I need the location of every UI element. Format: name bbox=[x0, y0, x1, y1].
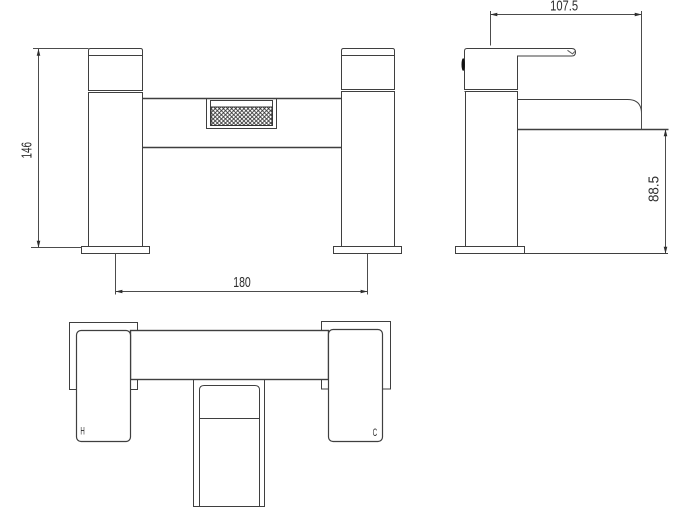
svg-text:146: 146 bbox=[19, 142, 36, 159]
svg-text:C: C bbox=[373, 427, 378, 439]
svg-text:180: 180 bbox=[233, 274, 251, 291]
svg-text:88.5: 88.5 bbox=[646, 176, 663, 202]
svg-text:H: H bbox=[80, 426, 84, 438]
svg-text:107.5: 107.5 bbox=[550, 0, 578, 15]
